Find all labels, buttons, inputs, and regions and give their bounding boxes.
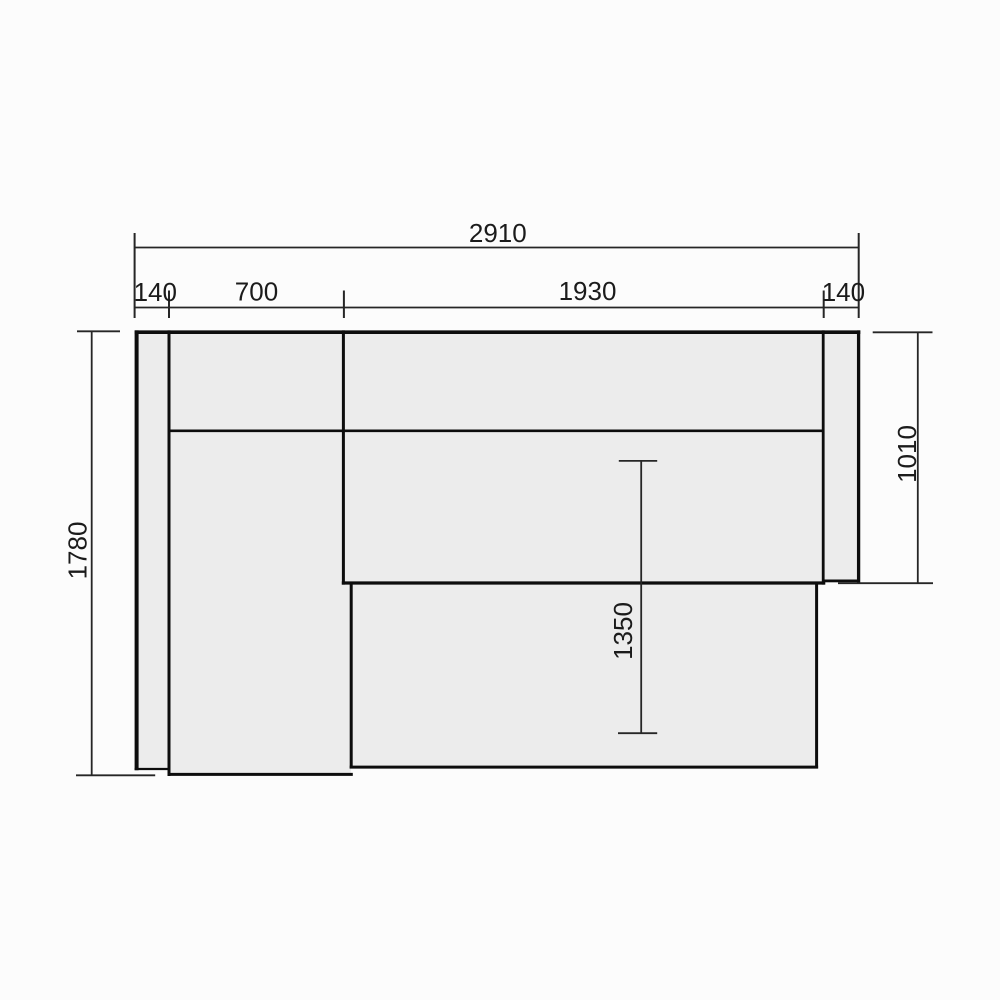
svg-text:2910: 2910 [469, 218, 527, 248]
svg-text:700: 700 [235, 277, 278, 307]
svg-text:1010: 1010 [892, 425, 922, 483]
svg-text:1930: 1930 [559, 276, 617, 306]
svg-text:140: 140 [822, 277, 865, 307]
svg-text:1780: 1780 [63, 522, 93, 580]
svg-text:1350: 1350 [608, 602, 638, 660]
svg-text:140: 140 [134, 277, 177, 307]
